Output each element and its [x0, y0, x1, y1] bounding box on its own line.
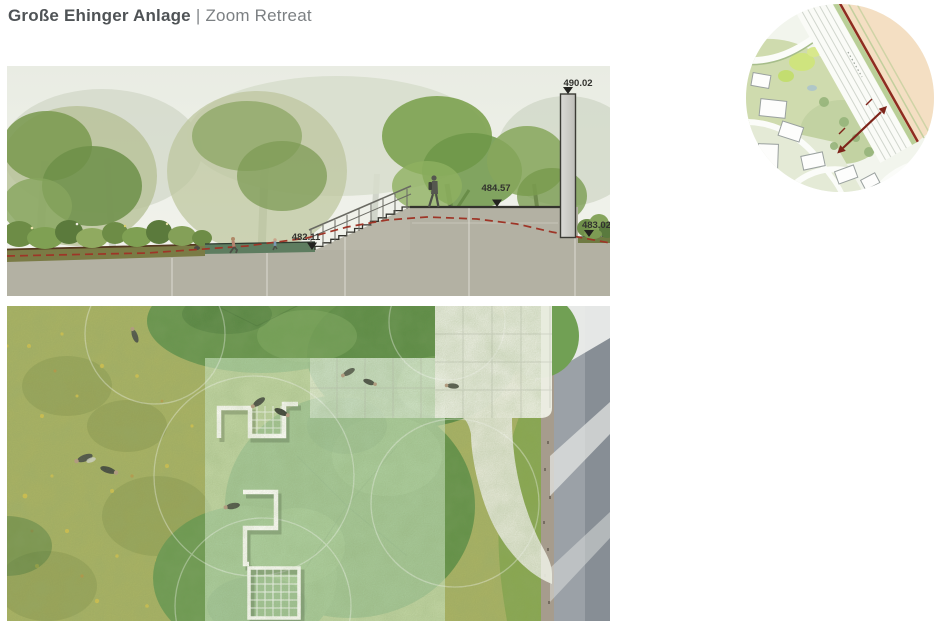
texture-grain: [7, 306, 541, 621]
retaining-wall: [561, 94, 576, 238]
page-title: Große Ehinger Anlage|Zoom Retreat: [8, 6, 312, 26]
location-map: [744, 2, 936, 194]
title-project: Große Ehinger Anlage: [8, 6, 191, 25]
slide-header: Große Ehinger Anlage|Zoom Retreat: [8, 6, 312, 26]
elevation-label: 484.57: [481, 183, 510, 194]
presentation-slide: Große Ehinger Anlage|Zoom Retreat: [0, 0, 936, 624]
title-subtitle: Zoom Retreat: [205, 6, 311, 25]
site-plan-drawing: [7, 306, 610, 621]
section-canvas: 490.02 484.57 482.11 483.02: [7, 66, 610, 296]
site-section-drawing: 490.02 484.57 482.11 483.02: [7, 66, 610, 296]
map-pond: [807, 85, 817, 91]
elevation-label: 483.02: [582, 220, 610, 231]
title-separator: |: [196, 6, 201, 25]
locator-canvas: [744, 2, 936, 194]
backpack: [429, 182, 433, 190]
plan-canvas: [7, 306, 610, 621]
elevation-label: 482.11: [292, 232, 321, 243]
